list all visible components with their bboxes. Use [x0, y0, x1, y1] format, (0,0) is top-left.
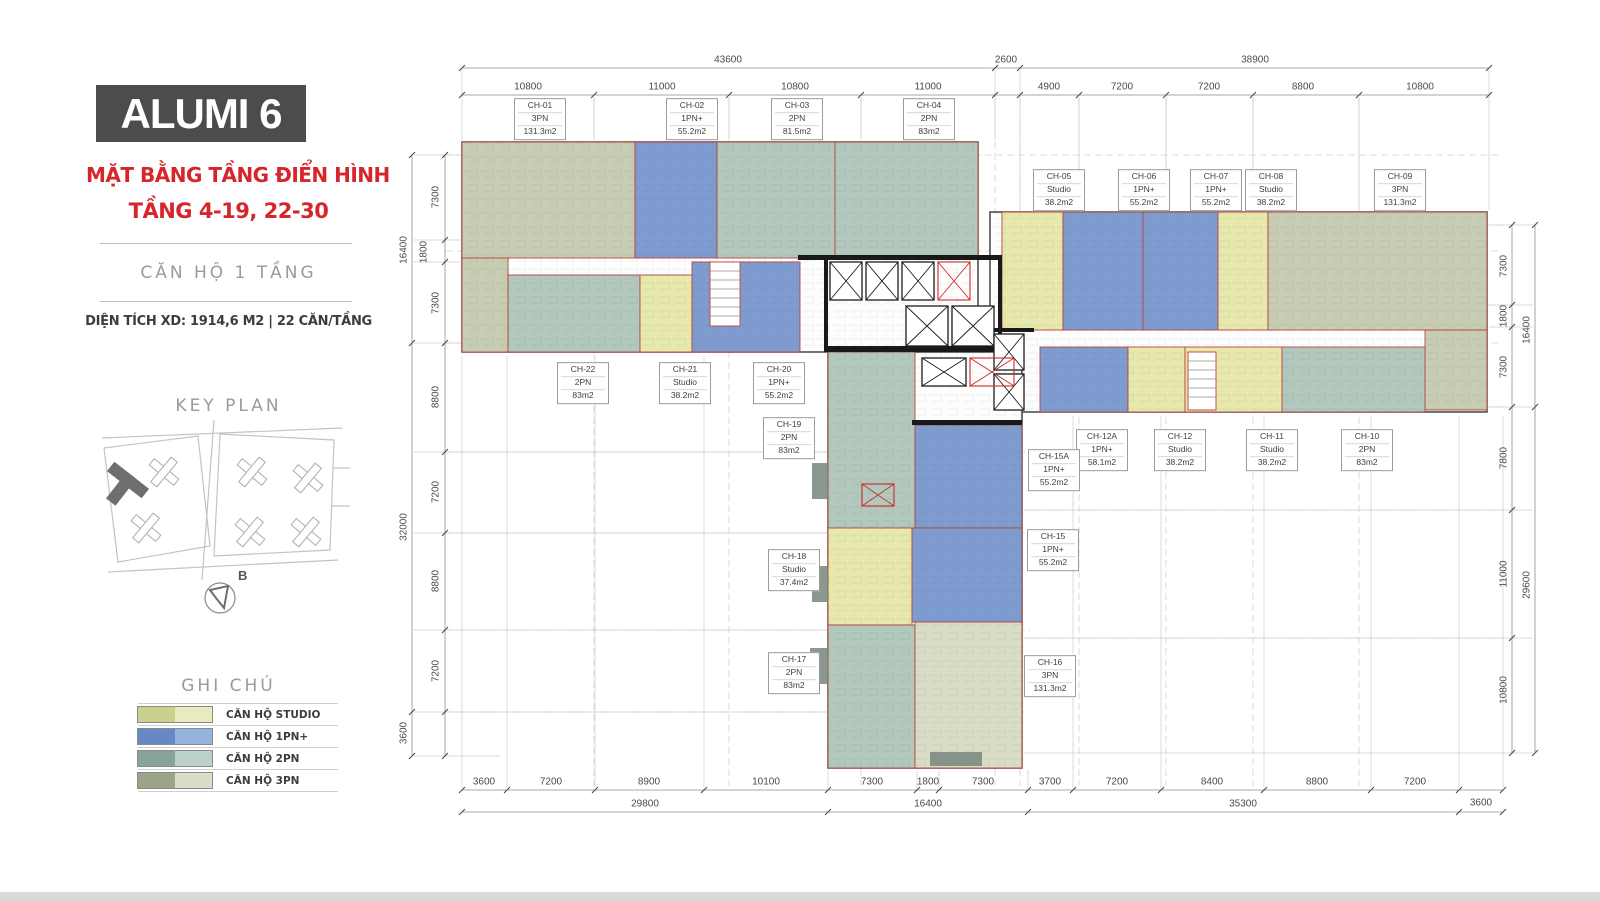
unit-area: 83m2 [767, 445, 811, 457]
unit-area: 38.2m2 [1158, 457, 1202, 469]
unit-area: 38.2m2 [1249, 197, 1293, 209]
dimension-label: 7300 [1499, 255, 1510, 277]
unit-label-ch-21: CH-21 Studio 38.2m2 [659, 362, 711, 404]
dimension-label: 2600 [995, 55, 1017, 66]
unit-type: Studio [1250, 443, 1294, 457]
dimension-label: 7200 [1111, 82, 1133, 93]
dimension-label: 8400 [1201, 777, 1223, 788]
unit-label-ch-10: CH-10 2PN 83m2 [1341, 429, 1393, 471]
unit-type: Studio [1158, 443, 1202, 457]
dimension-label: 8800 [431, 570, 442, 592]
unit-area: 55.2m2 [1032, 477, 1076, 489]
unit-id: CH-15A [1032, 451, 1076, 463]
unit-id: CH-07 [1194, 171, 1238, 183]
dimension-label: 16400 [1522, 316, 1533, 344]
dimension-label: 7300 [431, 292, 442, 314]
dimension-label: 16400 [399, 236, 410, 264]
unit-id: CH-21 [663, 364, 707, 376]
unit-label-ch-08: CH-08 Studio 38.2m2 [1245, 169, 1297, 211]
dimension-label: 8900 [638, 777, 660, 788]
unit-area: 83m2 [907, 126, 951, 138]
unit-label-ch-15a: CH-15A 1PN+ 55.2m2 [1028, 449, 1080, 491]
dimension-label: 10800 [1499, 676, 1510, 704]
unit-label-ch-12a: CH-12A 1PN+ 58.1m2 [1076, 429, 1128, 471]
dimension-label: 29800 [631, 799, 659, 810]
unit-area: 81.5m2 [775, 126, 819, 138]
dimension-label: 8800 [1306, 777, 1328, 788]
unit-area: 58.1m2 [1080, 457, 1124, 469]
unit-type: 1PN+ [1122, 183, 1166, 197]
unit-id: CH-19 [767, 419, 811, 431]
unit-area: 55.2m2 [1122, 197, 1166, 209]
unit-id: CH-12 [1158, 431, 1202, 443]
dimension-label: 10800 [781, 82, 809, 93]
dimension-label: 10800 [1406, 82, 1434, 93]
unit-type: 2PN [775, 112, 819, 126]
unit-type: 2PN [561, 376, 605, 390]
unit-type: 2PN [767, 431, 811, 445]
dimension-label: 35300 [1229, 799, 1257, 810]
unit-label-ch-16: CH-16 3PN 131.3m2 [1024, 655, 1076, 697]
dimension-label: 1800 [917, 777, 939, 788]
dimension-label: 3600 [1470, 798, 1492, 809]
dimension-label: 7300 [972, 777, 994, 788]
dimension-label: 4900 [1038, 82, 1060, 93]
unit-label-ch-09: CH-09 3PN 131.3m2 [1374, 169, 1426, 211]
unit-id: CH-16 [1028, 657, 1072, 669]
unit-type: Studio [772, 563, 816, 577]
dimension-label: 7800 [1499, 447, 1510, 469]
unit-area: 55.2m2 [757, 390, 801, 402]
unit-area: 38.2m2 [1250, 457, 1294, 469]
dimension-label: 16400 [914, 799, 942, 810]
unit-label-ch-19: CH-19 2PN 83m2 [763, 417, 815, 459]
unit-type: 1PN+ [670, 112, 714, 126]
unit-type: 1PN+ [757, 376, 801, 390]
unit-area: 131.3m2 [1028, 683, 1072, 695]
unit-id: CH-11 [1250, 431, 1294, 443]
dimension-label: 1800 [1499, 305, 1510, 327]
unit-id: CH-03 [775, 100, 819, 112]
unit-label-ch-20: CH-20 1PN+ 55.2m2 [753, 362, 805, 404]
page-bottom-strip [0, 892, 1600, 901]
unit-id: CH-06 [1122, 171, 1166, 183]
unit-type: 1PN+ [1031, 543, 1075, 557]
dimension-label: 7300 [1499, 356, 1510, 378]
unit-id: CH-22 [561, 364, 605, 376]
unit-id: CH-10 [1345, 431, 1389, 443]
unit-area: 83m2 [772, 680, 816, 692]
dimension-label: 8800 [1292, 82, 1314, 93]
unit-label-ch-17: CH-17 2PN 83m2 [768, 652, 820, 694]
dimension-label: 11000 [1499, 560, 1510, 587]
unit-area: 131.3m2 [1378, 197, 1422, 209]
unit-id: CH-08 [1249, 171, 1293, 183]
unit-id: CH-05 [1037, 171, 1081, 183]
unit-type: 2PN [772, 666, 816, 680]
unit-id: CH-02 [670, 100, 714, 112]
unit-type: Studio [1037, 183, 1081, 197]
unit-id: CH-20 [757, 364, 801, 376]
unit-label-ch-03: CH-03 2PN 81.5m2 [771, 98, 823, 140]
unit-id: CH-12A [1080, 431, 1124, 443]
unit-label-ch-06: CH-06 1PN+ 55.2m2 [1118, 169, 1170, 211]
dimension-label: 7200 [540, 777, 562, 788]
dimension-label: 11000 [914, 82, 941, 93]
unit-area: 38.2m2 [663, 390, 707, 402]
unit-type: 3PN [1028, 669, 1072, 683]
unit-type: 3PN [1378, 183, 1422, 197]
unit-area: 55.2m2 [670, 126, 714, 138]
unit-type: 1PN+ [1194, 183, 1238, 197]
dimension-label: 7200 [431, 481, 442, 503]
unit-label-ch-01: CH-01 3PN 131.3m2 [514, 98, 566, 140]
unit-area: 38.2m2 [1037, 197, 1081, 209]
unit-id: CH-18 [772, 551, 816, 563]
dimension-label: 3600 [473, 777, 495, 788]
unit-area: 37.4m2 [772, 577, 816, 589]
unit-label-ch-18: CH-18 Studio 37.4m2 [768, 549, 820, 591]
unit-id: CH-15 [1031, 531, 1075, 543]
unit-label-ch-05: CH-05 Studio 38.2m2 [1033, 169, 1085, 211]
dimension-label: 3700 [1039, 777, 1061, 788]
dimension-label: 11000 [648, 82, 675, 93]
dimension-label: 1800 [419, 241, 430, 263]
unit-type: Studio [663, 376, 707, 390]
dimension-label: 7200 [1198, 82, 1220, 93]
unit-type: 2PN [1345, 443, 1389, 457]
dimension-label: 10100 [752, 777, 780, 788]
floor-plan-page: ALUMI 6 MẶT BẰNG TẦNG ĐIỂN HÌNH TẦNG 4-1… [0, 0, 1600, 901]
unit-type: 3PN [518, 112, 562, 126]
dimension-label: 7200 [431, 660, 442, 682]
unit-label-ch-11: CH-11 Studio 38.2m2 [1246, 429, 1298, 471]
unit-type: Studio [1249, 183, 1293, 197]
unit-id: CH-09 [1378, 171, 1422, 183]
unit-label-ch-04: CH-04 2PN 83m2 [903, 98, 955, 140]
dimension-label: 7300 [431, 186, 442, 208]
unit-label-ch-02: CH-02 1PN+ 55.2m2 [666, 98, 718, 140]
unit-area: 83m2 [1345, 457, 1389, 469]
dimension-label: 38900 [1241, 55, 1269, 66]
unit-label-ch-12: CH-12 Studio 38.2m2 [1154, 429, 1206, 471]
unit-label-ch-22: CH-22 2PN 83m2 [557, 362, 609, 404]
unit-id: CH-01 [518, 100, 562, 112]
dimension-label: 8800 [431, 386, 442, 408]
unit-type: 2PN [907, 112, 951, 126]
unit-area: 55.2m2 [1194, 197, 1238, 209]
dimension-label: 29600 [1522, 571, 1533, 599]
dimension-label: 7200 [1404, 777, 1426, 788]
unit-label-ch-07: CH-07 1PN+ 55.2m2 [1190, 169, 1242, 211]
unit-id: CH-17 [772, 654, 816, 666]
dimension-label: 7300 [861, 777, 883, 788]
dimension-label: 32000 [399, 513, 410, 541]
unit-type: 1PN+ [1032, 463, 1076, 477]
unit-label-ch-15: CH-15 1PN+ 55.2m2 [1027, 529, 1079, 571]
dimension-label: 43600 [714, 55, 742, 66]
dimension-label: 3600 [399, 722, 410, 744]
dimension-label: 10800 [514, 82, 542, 93]
dimension-label: 7200 [1106, 777, 1128, 788]
unit-area: 131.3m2 [518, 126, 562, 138]
unit-type: 1PN+ [1080, 443, 1124, 457]
plan-texture [462, 142, 1487, 768]
unit-id: CH-04 [907, 100, 951, 112]
unit-area: 55.2m2 [1031, 557, 1075, 569]
unit-area: 83m2 [561, 390, 605, 402]
